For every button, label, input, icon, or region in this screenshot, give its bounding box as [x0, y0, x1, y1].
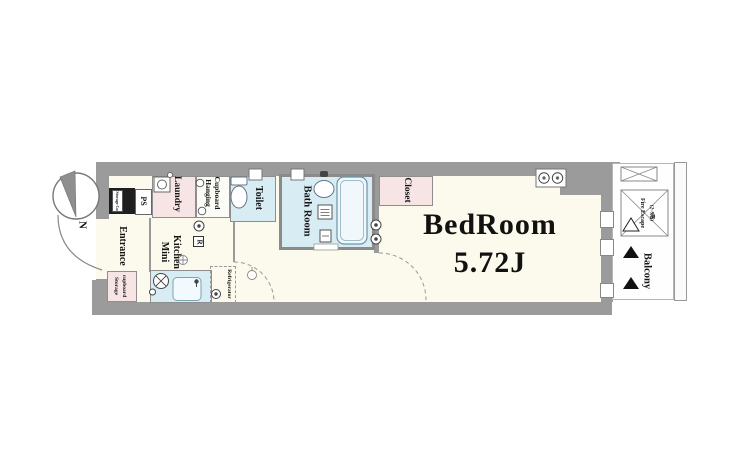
closet-label: Closet: [401, 177, 411, 202]
washbasin-icon: [314, 171, 334, 198]
sink-icon: [173, 278, 201, 301]
fire-escape-label-line1: Fire Escape: [639, 198, 645, 228]
refrigerator-outlet-icon: [212, 290, 221, 299]
bath-control-panel-icons: [314, 205, 338, 250]
storage-cupboard-label-word2: cupboard: [120, 275, 126, 298]
bathroom-label: Bath Room: [301, 185, 312, 236]
washer-outlet-icons: [371, 220, 381, 244]
compass-n-label: N: [77, 221, 88, 229]
refrigerator-outlet-label: R: [195, 239, 202, 244]
vent-box-icons: [249, 169, 304, 180]
hanging-cupboard-label-word1: Hanging: [204, 179, 212, 207]
storage-cupboard-label-word1: Storage: [112, 277, 118, 295]
entrance-label: Entrance: [117, 226, 127, 265]
balcony-label: Balcony: [641, 253, 652, 289]
pipe-space-label: PS: [139, 196, 147, 205]
corridor-door-arc-icon: [234, 262, 274, 302]
balcony-marker-triangle-icon: [623, 246, 639, 258]
laundry-label: Laundry: [171, 176, 181, 212]
corridor-light-icon: [248, 267, 257, 280]
toilet-label: Toilet: [253, 186, 263, 210]
mini-kitchen-label-word1: Mini: [159, 242, 169, 263]
balcony-vent-hatch-icon: [621, 167, 657, 181]
balcony-marker-triangle-icon: [623, 277, 639, 289]
hanging-cupboard-label-word2: Cupboard: [213, 177, 221, 210]
stove-icon: [150, 274, 169, 296]
mini-kitchen-label-word2: Kitchen: [171, 235, 181, 269]
bathtub-icon: [337, 177, 367, 244]
fire-escape-label-line2: (2~9階): [649, 205, 654, 221]
outlet-circle-icon: [194, 221, 204, 231]
floorplan-canvas: N Entrance Mini Kitchen Laundry Hanging …: [0, 0, 730, 470]
plan-vector-overlay: [0, 0, 730, 470]
bedroom-name-label: BedRoom: [382, 210, 598, 240]
bedroom-size-label: 5.72J: [382, 248, 598, 278]
shaft-storage-label: Storage Cu: [115, 191, 119, 210]
refrigerator-label: Refrigerator: [225, 269, 231, 299]
washing-machine-icon: [154, 173, 173, 193]
toilet-icon: [231, 177, 247, 208]
compass-icon: [53, 171, 99, 219]
wall-outlet-box-icon: [536, 169, 566, 187]
